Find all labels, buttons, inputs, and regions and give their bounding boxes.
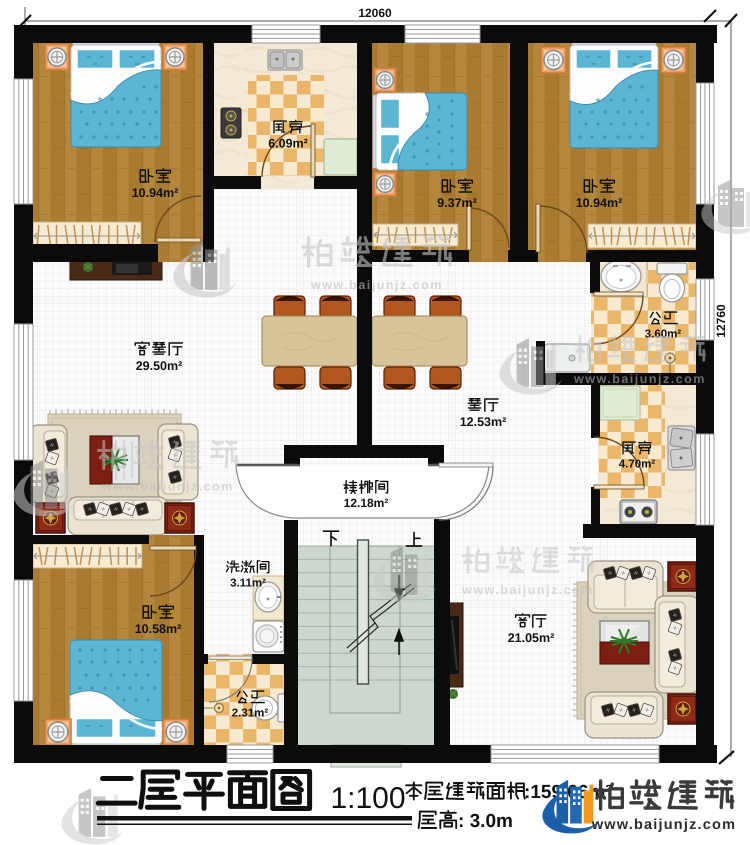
svg-text:4.70m²: 4.70m² <box>619 459 656 471</box>
svg-text:12.18m²: 12.18m² <box>344 496 389 510</box>
svg-text:29.50m²: 29.50m² <box>136 359 183 373</box>
svg-text:www.baijunjz.com: www.baijunjz.com <box>310 278 443 292</box>
svg-text:12060: 12060 <box>358 6 392 20</box>
svg-text:9.37m²: 9.37m² <box>437 196 477 210</box>
svg-text:3.11m²: 3.11m² <box>230 577 266 589</box>
svg-text:10.94m²: 10.94m² <box>576 196 623 210</box>
svg-text:12760: 12760 <box>714 304 728 338</box>
svg-text:www.baijunjz.com: www.baijunjz.com <box>461 583 594 597</box>
svg-text:www.baijunjz.com: www.baijunjz.com <box>573 372 706 386</box>
svg-text:1:100: 1:100 <box>330 782 405 815</box>
svg-text:12.53m²: 12.53m² <box>460 415 507 429</box>
svg-text:10.94m²: 10.94m² <box>132 186 179 200</box>
svg-text:www.baijunjz.com: www.baijunjz.com <box>591 817 736 833</box>
svg-text:2.31m²: 2.31m² <box>232 708 269 720</box>
svg-text:www.baijunjz.com: www.baijunjz.com <box>101 479 234 493</box>
svg-text:: 3.0m: : 3.0m <box>458 811 513 832</box>
svg-text:10.58m²: 10.58m² <box>135 622 182 636</box>
svg-text:21.05m²: 21.05m² <box>508 631 555 645</box>
svg-text:6.09m²: 6.09m² <box>268 137 308 151</box>
